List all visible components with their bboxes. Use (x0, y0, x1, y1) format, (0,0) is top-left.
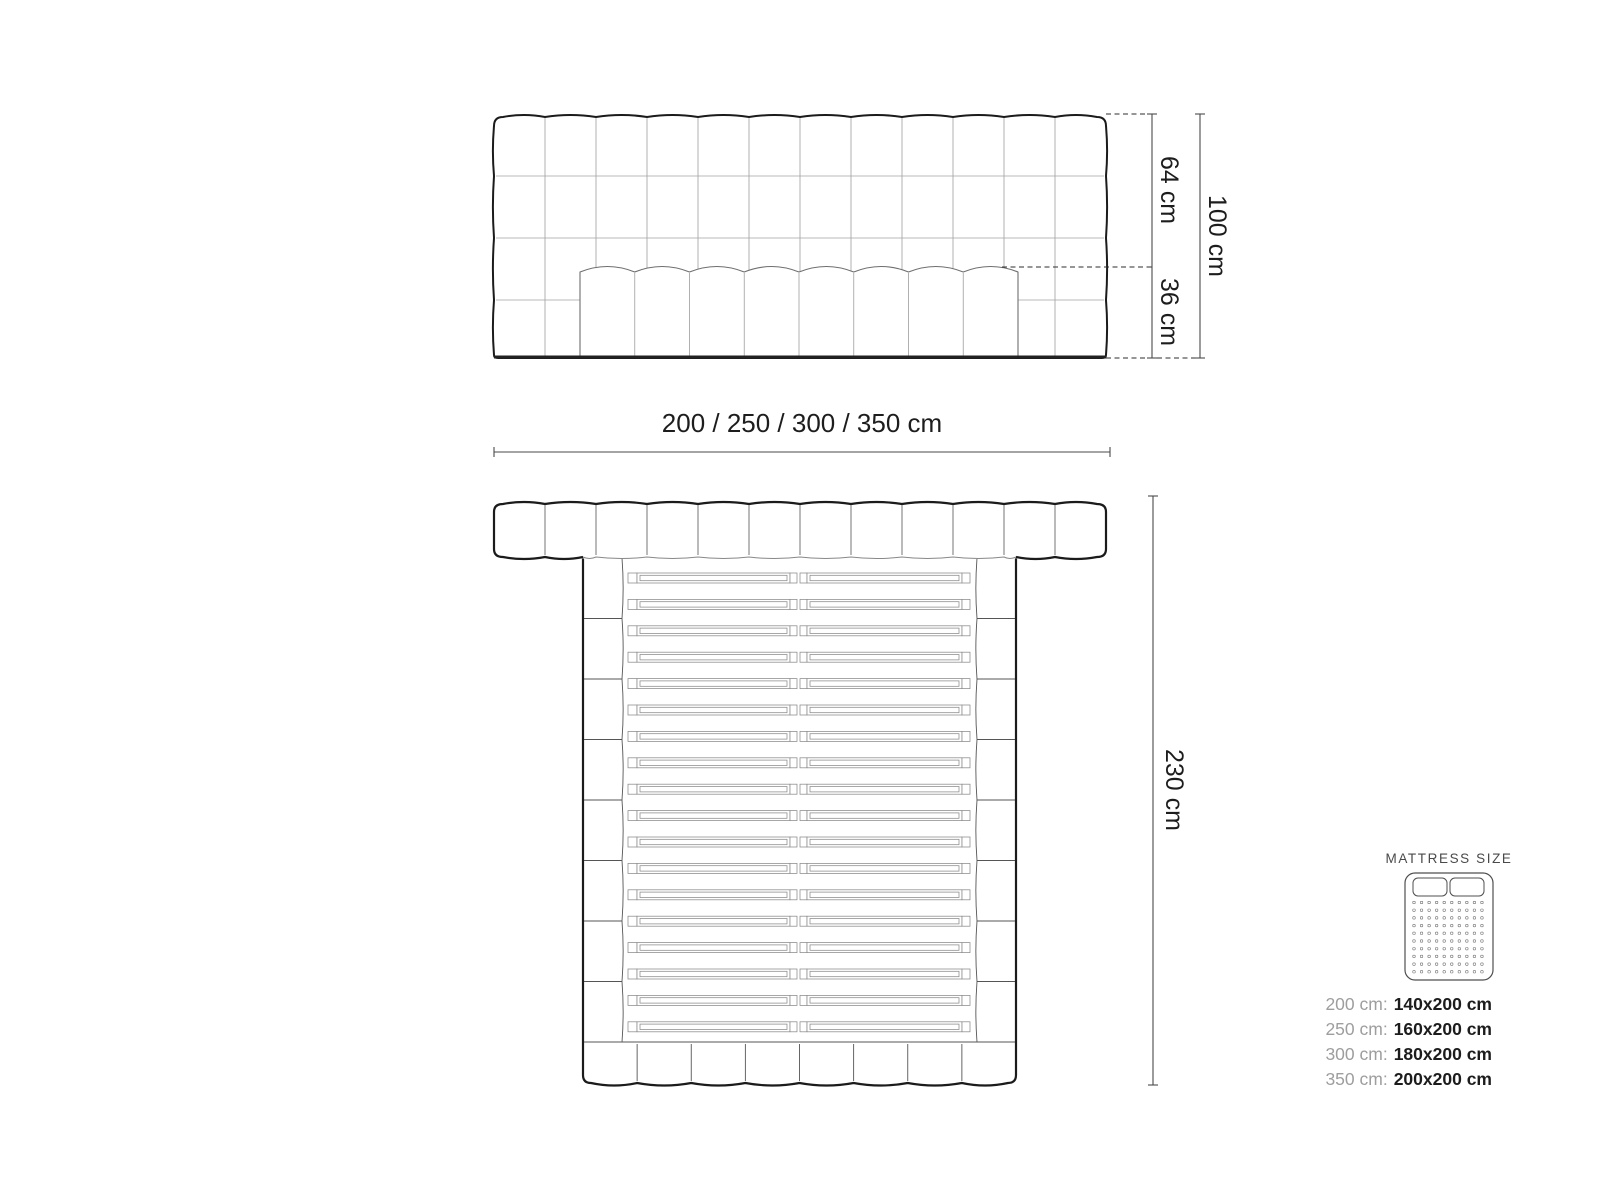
slat-bar-inner (640, 787, 787, 792)
slat-end-cap (790, 626, 797, 636)
slat-end-cap (790, 995, 797, 1005)
slat-bar-inner (810, 760, 959, 765)
slat-bar-inner (810, 866, 959, 871)
size-option-label: 300 cm: (1325, 1044, 1387, 1064)
dim-label-230cm: 230 cm (1160, 749, 1188, 831)
slat-end-cap (962, 705, 970, 715)
slat-end-cap (800, 837, 807, 847)
slat-end-cap (628, 995, 637, 1005)
slat-end-cap (790, 784, 797, 794)
slat-end-cap (628, 573, 637, 583)
slat-end-cap (962, 1022, 970, 1032)
size-option-label: 200 cm: (1325, 994, 1387, 1014)
slat-end-cap (800, 679, 807, 689)
slat-end-cap (962, 599, 970, 609)
slat-end-cap (800, 573, 807, 583)
slat-bar-inner (640, 707, 787, 712)
mattress-size-legend (1405, 873, 1493, 980)
size-option-value: 200x200 cm (1394, 1069, 1492, 1089)
slat-end-cap (790, 811, 797, 821)
slat-bar-inner (640, 575, 787, 580)
slat-end-cap (800, 863, 807, 873)
slat-end-cap (962, 916, 970, 926)
slat-end-cap (962, 731, 970, 741)
slat-end-cap (628, 916, 637, 926)
slat-end-cap (800, 626, 807, 636)
slat-bar-inner (640, 866, 787, 871)
slat-end-cap (628, 784, 637, 794)
front-view-diagram (493, 115, 1107, 358)
slat-end-cap (790, 916, 797, 926)
bed-dimension-sheet: 64 cm 36 cm 100 cm 200 / 250 / 300 / 350… (0, 0, 1600, 1200)
slat-bar-inner (810, 681, 959, 686)
slat-end-cap (962, 969, 970, 979)
slat-end-cap (800, 890, 807, 900)
slat-end-cap (962, 652, 970, 662)
slat-end-cap (962, 863, 970, 873)
slat-bar-inner (640, 892, 787, 897)
slat-end-cap (628, 969, 637, 979)
slat-bar-inner (640, 971, 787, 976)
size-option-value: 160x200 cm (1394, 1019, 1492, 1039)
slat-bar-inner (640, 1024, 787, 1029)
slat-end-cap (800, 599, 807, 609)
slat-end-cap (962, 784, 970, 794)
bed-body-fill (583, 557, 1016, 1086)
slat-bar-inner (810, 892, 959, 897)
slat-bar-inner (640, 655, 787, 660)
slat-end-cap (628, 758, 637, 768)
slat-end-cap (800, 811, 807, 821)
size-option-label: 350 cm: (1325, 1069, 1387, 1089)
slat-bar-inner (810, 839, 959, 844)
slat-end-cap (790, 731, 797, 741)
slat-end-cap (800, 969, 807, 979)
slat-bar-inner (810, 813, 959, 818)
legend-size-row: 350 cm:200x200 cm (1325, 1069, 1492, 1089)
slat-end-cap (790, 758, 797, 768)
slat-bar-inner (640, 945, 787, 950)
slat-end-cap (962, 679, 970, 689)
size-option-value: 140x200 cm (1394, 994, 1492, 1014)
slat-end-cap (628, 1022, 637, 1032)
slat-end-cap (962, 943, 970, 953)
slat-bar-inner (640, 734, 787, 739)
slat-end-cap (790, 652, 797, 662)
size-option-value: 180x200 cm (1394, 1044, 1492, 1064)
diagram-svg: 64 cm 36 cm 100 cm 200 / 250 / 300 / 350… (0, 0, 1600, 1200)
slat-bar-inner (640, 760, 787, 765)
slat-end-cap (800, 705, 807, 715)
slat-end-cap (628, 705, 637, 715)
slat-end-cap (628, 837, 637, 847)
slat-end-cap (628, 626, 637, 636)
legend-size-row: 200 cm:140x200 cm (1325, 994, 1492, 1014)
slat-bar-inner (640, 839, 787, 844)
slat-end-cap (628, 811, 637, 821)
slat-bar-inner (810, 602, 959, 607)
slat-end-cap (962, 758, 970, 768)
slat-bar-inner (810, 707, 959, 712)
slat-end-cap (962, 890, 970, 900)
slat-bar-inner (640, 681, 787, 686)
slat-end-cap (800, 1022, 807, 1032)
slat-end-cap (790, 1022, 797, 1032)
slat-end-cap (800, 916, 807, 926)
dim-label-64cm: 64 cm (1155, 156, 1183, 224)
slat-bar-inner (640, 919, 787, 924)
slat-bar-inner (810, 734, 959, 739)
slat-end-cap (790, 599, 797, 609)
slat-end-cap (800, 943, 807, 953)
slat-bar-inner (810, 971, 959, 976)
slat-bar-inner (640, 628, 787, 633)
dim-label-100cm: 100 cm (1203, 195, 1231, 277)
slat-end-cap (790, 837, 797, 847)
mattress-icon-pillow (1450, 878, 1484, 896)
slat-bar-inner (810, 1024, 959, 1029)
slat-bar-inner (810, 919, 959, 924)
legend-title: MATTRESS SIZE (1385, 851, 1512, 866)
slat-bar-inner (810, 655, 959, 660)
slat-bar-inner (640, 602, 787, 607)
slat-bar-inner (810, 628, 959, 633)
slat-end-cap (800, 652, 807, 662)
slat-end-cap (962, 573, 970, 583)
slat-end-cap (790, 705, 797, 715)
slat-end-cap (790, 969, 797, 979)
slat-end-cap (800, 995, 807, 1005)
slat-end-cap (628, 890, 637, 900)
slat-bar-inner (640, 813, 787, 818)
slat-bar-inner (640, 998, 787, 1003)
slat-bar-inner (810, 998, 959, 1003)
legend-size-row: 250 cm:160x200 cm (1325, 1019, 1492, 1039)
top-view-diagram (494, 502, 1106, 1086)
dim-label-36cm: 36 cm (1155, 278, 1183, 346)
slat-bar-inner (810, 945, 959, 950)
slat-end-cap (800, 731, 807, 741)
size-option-label: 250 cm: (1325, 1019, 1387, 1039)
slat-end-cap (628, 731, 637, 741)
slat-end-cap (962, 626, 970, 636)
dim-label-width-options: 200 / 250 / 300 / 350 cm (662, 408, 942, 438)
slat-end-cap (628, 863, 637, 873)
slat-end-cap (790, 679, 797, 689)
slat-end-cap (800, 784, 807, 794)
slat-end-cap (790, 863, 797, 873)
legend-size-row: 300 cm:180x200 cm (1325, 1044, 1492, 1064)
slat-end-cap (628, 943, 637, 953)
slat-end-cap (962, 837, 970, 847)
slat-bar-inner (810, 575, 959, 580)
slat-end-cap (628, 679, 637, 689)
slat-bar-inner (810, 787, 959, 792)
slat-end-cap (790, 943, 797, 953)
slat-end-cap (962, 811, 970, 821)
mattress-icon-pillow (1413, 878, 1447, 896)
slat-end-cap (790, 890, 797, 900)
slat-end-cap (800, 758, 807, 768)
slat-end-cap (790, 573, 797, 583)
slat-end-cap (628, 599, 637, 609)
slat-end-cap (628, 652, 637, 662)
slat-end-cap (962, 995, 970, 1005)
